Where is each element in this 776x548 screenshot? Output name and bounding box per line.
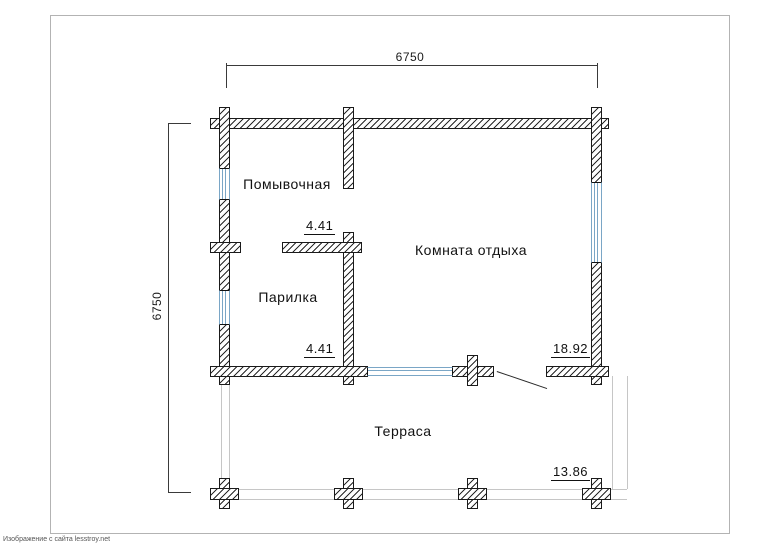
window-bottom xyxy=(367,367,453,376)
wall-left-mid2 xyxy=(219,252,230,291)
terrace-post-1-horizontal xyxy=(210,488,239,500)
left-dimension-label: 6750 xyxy=(150,284,164,328)
page-border xyxy=(50,15,730,534)
wall-bottom-left xyxy=(210,366,368,377)
left-dimension-tick-bottom xyxy=(168,492,191,493)
terrace-left-edge xyxy=(221,383,230,489)
partition-horizontal-stub xyxy=(210,242,241,253)
top-dimension-tick-left xyxy=(226,63,227,88)
room-label-pomyvochnaya: Помывочная xyxy=(230,176,344,192)
area-label-parilka: 4.41 xyxy=(304,341,335,358)
room-label-terrasa: Терраса xyxy=(365,423,441,439)
partition-horizontal xyxy=(282,242,362,253)
top-dimension-label: 6750 xyxy=(388,50,432,64)
post-bottom-wall xyxy=(467,355,478,386)
window-right xyxy=(591,182,602,263)
floor-plan-canvas: 6750 6750 Помывочная Парилка Комната xyxy=(0,0,776,548)
top-dimension-line xyxy=(226,65,597,66)
terrace-post-2-horizontal xyxy=(334,488,363,500)
terrace-post-4-horizontal xyxy=(582,488,611,500)
partition-vertical-lower xyxy=(343,232,354,385)
left-dimension-tick-top xyxy=(168,123,191,124)
wall-left-upper xyxy=(219,107,230,169)
room-label-komnata-otdyha: Комната отдыха xyxy=(405,242,537,258)
left-dimension-line xyxy=(168,123,169,492)
wall-right-upper xyxy=(591,107,602,183)
terrace-right-edge xyxy=(612,376,628,489)
room-label-parilka: Парилка xyxy=(250,289,326,305)
watermark-text: Изображение с сайта lesstroy.net xyxy=(3,536,110,543)
window-left-upper xyxy=(219,168,230,200)
area-label-terrasa: 13.86 xyxy=(551,464,590,481)
terrace-post-3-horizontal xyxy=(458,488,487,500)
partition-vertical-upper xyxy=(343,107,354,189)
top-dimension-tick-right xyxy=(597,63,598,88)
wall-left-mid1 xyxy=(219,199,230,243)
wall-top xyxy=(210,118,609,129)
window-left-lower xyxy=(219,290,230,325)
area-label-komnata-otdyha: 18.92 xyxy=(551,341,590,358)
terrace-bottom-edge xyxy=(221,489,627,500)
area-label-pomyvochnaya: 4.41 xyxy=(304,218,335,235)
wall-bottom-right xyxy=(546,366,609,377)
